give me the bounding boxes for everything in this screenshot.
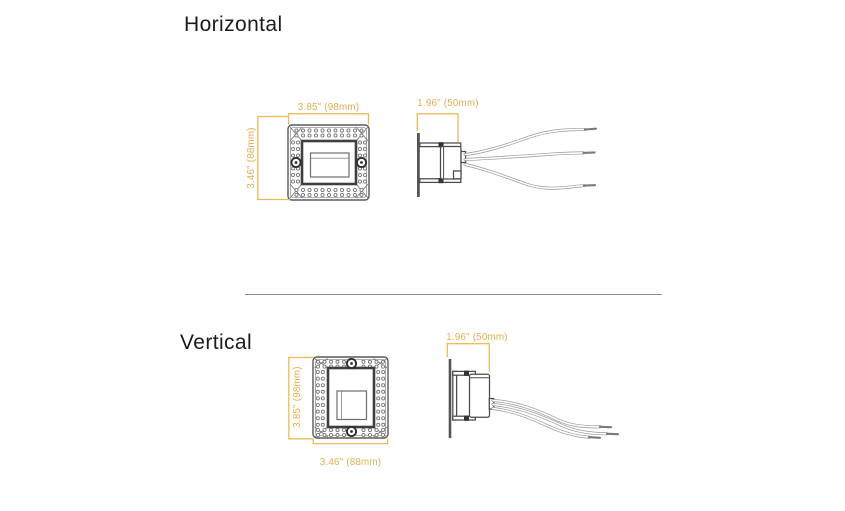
screw-right — [357, 158, 366, 167]
horizontal-side-view: 1.96" (50mm) — [417, 98, 596, 197]
depth-dimension-line — [417, 114, 458, 142]
vertical-height-dimension: 3.85" (98mm) — [292, 366, 303, 427]
horizontal-front-view: 3.85" (98mm) 3.46" (88mm) — [246, 102, 369, 200]
width-dimension-line — [289, 114, 369, 125]
width-dimension-line — [313, 439, 387, 444]
horizontal-width-dimension: 3.85" (98mm) — [298, 102, 359, 113]
vertical-side-view: 1.96" (50mm) — [446, 332, 618, 438]
horizontal-height-dimension: 3.46" (88mm) — [246, 127, 257, 188]
flange — [449, 359, 452, 438]
lead-wires — [465, 129, 596, 189]
screw-bottom — [347, 427, 356, 436]
horizontal-depth-dimension: 1.96" (50mm) — [417, 98, 478, 109]
technical-diagram: 3.85" (98mm) 3.46" (88mm) — [0, 0, 845, 511]
depth-dimension-line — [447, 344, 489, 371]
screw-left — [291, 158, 300, 167]
spec-sheet-page: Horizontal Vertical 3.85" (98m — [0, 0, 845, 511]
lead-wires — [493, 401, 618, 438]
height-dimension-line — [258, 117, 290, 200]
housing — [470, 374, 490, 417]
vertical-depth-dimension: 1.96" (50mm) — [446, 332, 507, 343]
vertical-front-view: 3.85" (98mm) 3.46" (88mm) — [289, 357, 388, 468]
vertical-width-dimension: 3.46" (88mm) — [320, 457, 381, 468]
screw-top — [347, 359, 356, 368]
